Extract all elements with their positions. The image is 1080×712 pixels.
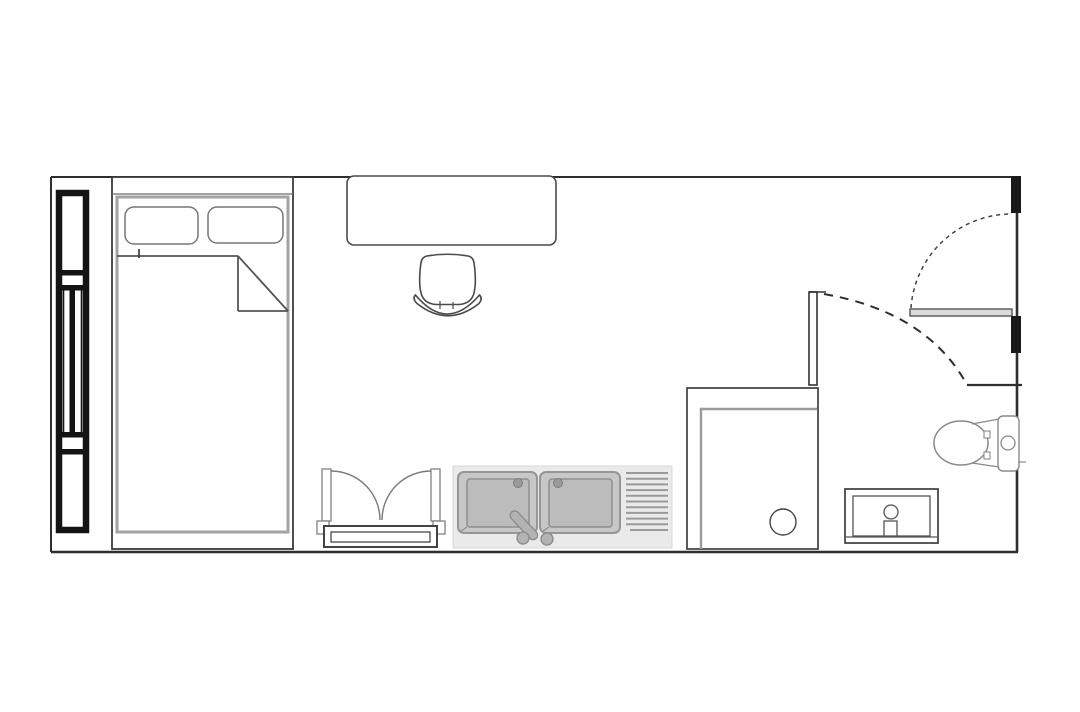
desk: [347, 176, 556, 245]
toilet-hinge: [984, 431, 990, 438]
left-window: [58, 193, 87, 530]
floor-plan-page: [0, 0, 1080, 712]
sink-drain-right: [554, 479, 563, 488]
sink-knob-left: [517, 532, 529, 544]
toilet-seat-line: [972, 419, 999, 424]
sink-knob-right: [541, 533, 553, 545]
bed-pillow-right: [208, 207, 283, 243]
window-seat-cushion: [331, 532, 430, 542]
casement-sash-left: [322, 469, 331, 521]
bed: [112, 177, 293, 549]
kitchen-sink-unit: [453, 466, 672, 548]
entry-door-leaf: [910, 309, 1012, 316]
chair-seat: [420, 254, 476, 304]
entry-door-swing-arc: [911, 214, 1009, 308]
toilet: [934, 416, 1026, 471]
casement-swing-left: [331, 471, 380, 520]
casement-swing-right: [382, 471, 431, 520]
left-window-bar: [58, 449, 87, 455]
casement-window: [317, 469, 445, 547]
partition-wall: [809, 292, 817, 385]
left-window-mullion: [70, 291, 76, 433]
vanity-drain: [884, 505, 898, 519]
bathroom-vanity: [845, 489, 938, 543]
shower: [687, 388, 818, 549]
toilet-hinge: [984, 452, 990, 459]
bathroom-partition: [809, 292, 826, 385]
shower-drain: [770, 509, 796, 535]
bathroom-door-swing-arc: [824, 294, 966, 383]
left-window-bar: [58, 270, 87, 276]
casement-sash-right: [431, 469, 440, 521]
left-window-bar: [58, 285, 87, 291]
entry-door: [910, 214, 1012, 316]
toilet-seat-line: [972, 463, 999, 467]
door-jamb-bottom: [1011, 316, 1021, 353]
floor-plan-canvas: [0, 0, 1080, 712]
vanity-faucet: [884, 521, 897, 536]
left-window-bar: [58, 432, 87, 438]
bed-duvet: [117, 197, 288, 532]
door-jamb-top: [1011, 176, 1021, 213]
shower-enclosure: [687, 388, 818, 549]
desk-top: [347, 176, 556, 245]
sink-drain-left: [514, 479, 523, 488]
toilet-flush-button: [1001, 436, 1015, 450]
toilet-bowl: [934, 421, 988, 465]
bed-pillow-left: [125, 207, 198, 244]
chair: [414, 254, 481, 316]
